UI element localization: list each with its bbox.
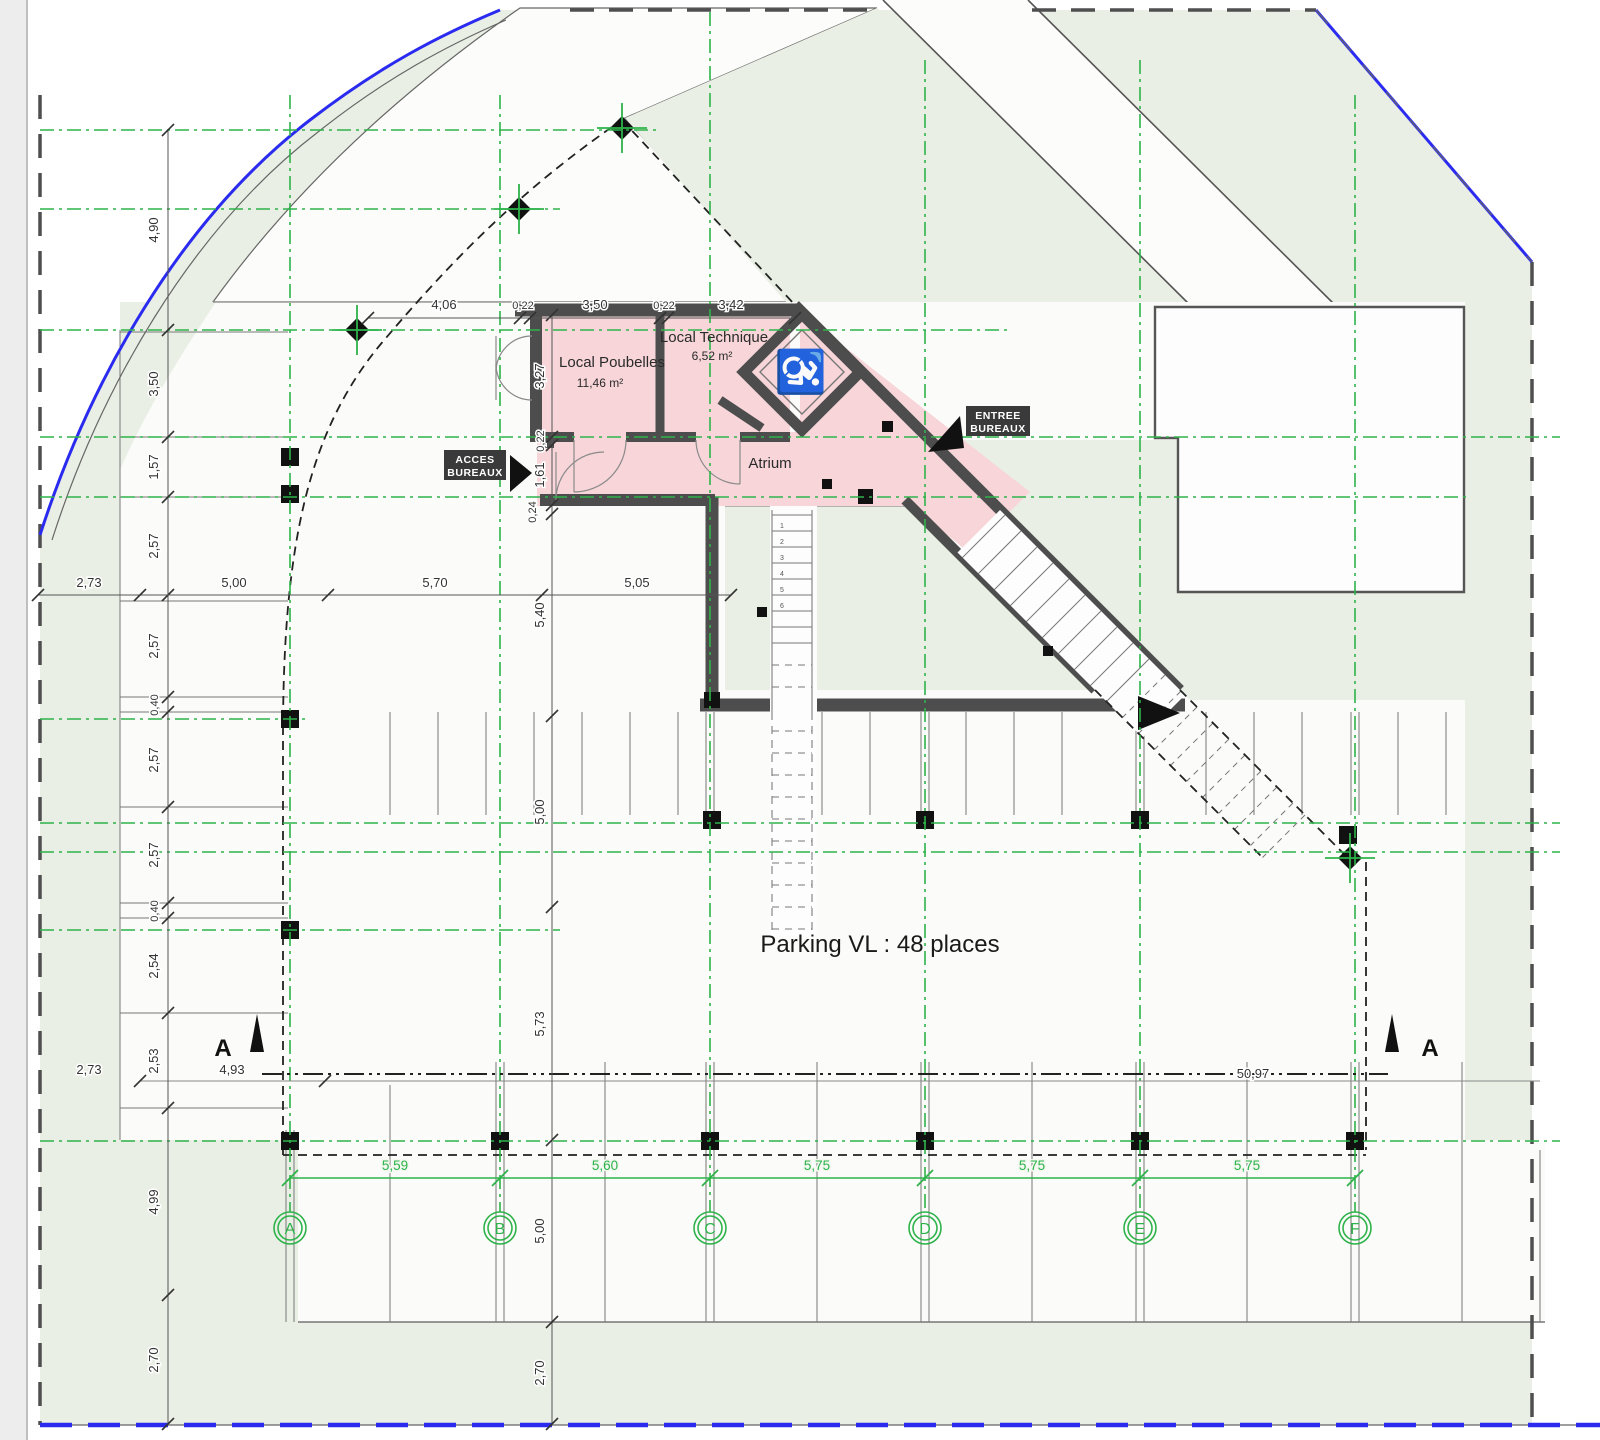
grid-bubble-f: F (1350, 1221, 1360, 1238)
grid-dim: 5,75 (804, 1158, 830, 1173)
dim: 4,99 (146, 1189, 161, 1214)
dim: 2,57 (146, 633, 161, 658)
section-label-left: A (214, 1035, 231, 1062)
dim: 3,42 (718, 297, 743, 312)
dim: 2,73 (76, 575, 101, 590)
dim: 4,06 (431, 297, 456, 312)
dim: 4,90 (146, 217, 161, 242)
grid-dim: 5,75 (1234, 1158, 1260, 1173)
dim: 5,05 (624, 575, 649, 590)
dim: 1,57 (146, 454, 161, 479)
right-building (1155, 307, 1464, 592)
dim: 0,22 (653, 300, 674, 312)
entree-line2: BUREAUX (970, 423, 1025, 435)
dim: 0,40 (149, 900, 161, 921)
dim: 1,61 (532, 462, 547, 487)
stair-digit: 5 (780, 587, 784, 594)
wheelchair-icon: ♿ (776, 346, 825, 398)
dim: 5,70 (422, 575, 447, 590)
grid-dim: 5,59 (382, 1158, 408, 1173)
entree-line1: ENTREE (975, 410, 1021, 422)
dim: 2,70 (146, 1347, 161, 1372)
grid-bubble-d: D (919, 1221, 931, 1238)
stair-digit: 4 (780, 571, 784, 578)
grid-bubble-c: C (704, 1221, 716, 1238)
acces-line2: BUREAUX (447, 467, 502, 479)
dim: 5,00 (532, 799, 547, 824)
dim: 2,73 (76, 1062, 101, 1077)
room-area-technique: 6,52 m² (692, 349, 733, 363)
dim: 0,22 (535, 430, 547, 451)
floor-plan-canvas: ♿ 1 2 3 4 5 6 (0, 0, 1600, 1440)
dim: 2,57 (146, 747, 161, 772)
dim: 3,27 (532, 363, 547, 388)
dim: 2,54 (146, 953, 161, 978)
dim: 3,50 (582, 297, 607, 312)
overall-dim: 50,97 (1237, 1066, 1270, 1081)
stair-digit: 3 (780, 555, 784, 562)
room-area-poubelles: 11,46 m² (577, 376, 623, 390)
grid-bubble-b: B (495, 1221, 506, 1238)
stair-digit: 2 (780, 539, 784, 546)
acces-line1: ACCES (455, 454, 494, 466)
page-edge-strip (0, 0, 26, 1440)
dim: 2,53 (146, 1048, 161, 1073)
dim: 0,40 (149, 694, 161, 715)
grid-bubble-e: E (1135, 1221, 1146, 1238)
dim: 3,50 (146, 371, 161, 396)
room-label-atrium: Atrium (748, 455, 791, 472)
dim: 2,57 (146, 533, 161, 558)
parking-label: Parking VL : 48 places (760, 931, 999, 958)
dim: 5,73 (532, 1011, 547, 1036)
room-label-poubelles: Local Poubelles (559, 354, 665, 371)
dim: 5,00 (221, 575, 246, 590)
grid-dim: 5,75 (1019, 1158, 1045, 1173)
section-label-right: A (1421, 1035, 1438, 1062)
dim: 5,40 (532, 602, 547, 627)
dim: 5,00 (532, 1218, 547, 1243)
stair-digit: 1 (780, 523, 784, 530)
dim: 2,70 (532, 1360, 547, 1385)
dim: 4,93 (219, 1062, 244, 1077)
dim: 2,57 (146, 842, 161, 867)
stair-digit: 6 (780, 603, 784, 610)
dim: 0,24 (527, 501, 539, 522)
stair-vertical: 1 2 3 4 5 6 (770, 506, 817, 936)
grid-dim: 5,60 (592, 1158, 618, 1173)
grid-bubble-a: A (285, 1221, 296, 1238)
dim: 0,22 (512, 300, 533, 312)
room-label-technique: Local Technique (660, 329, 768, 346)
